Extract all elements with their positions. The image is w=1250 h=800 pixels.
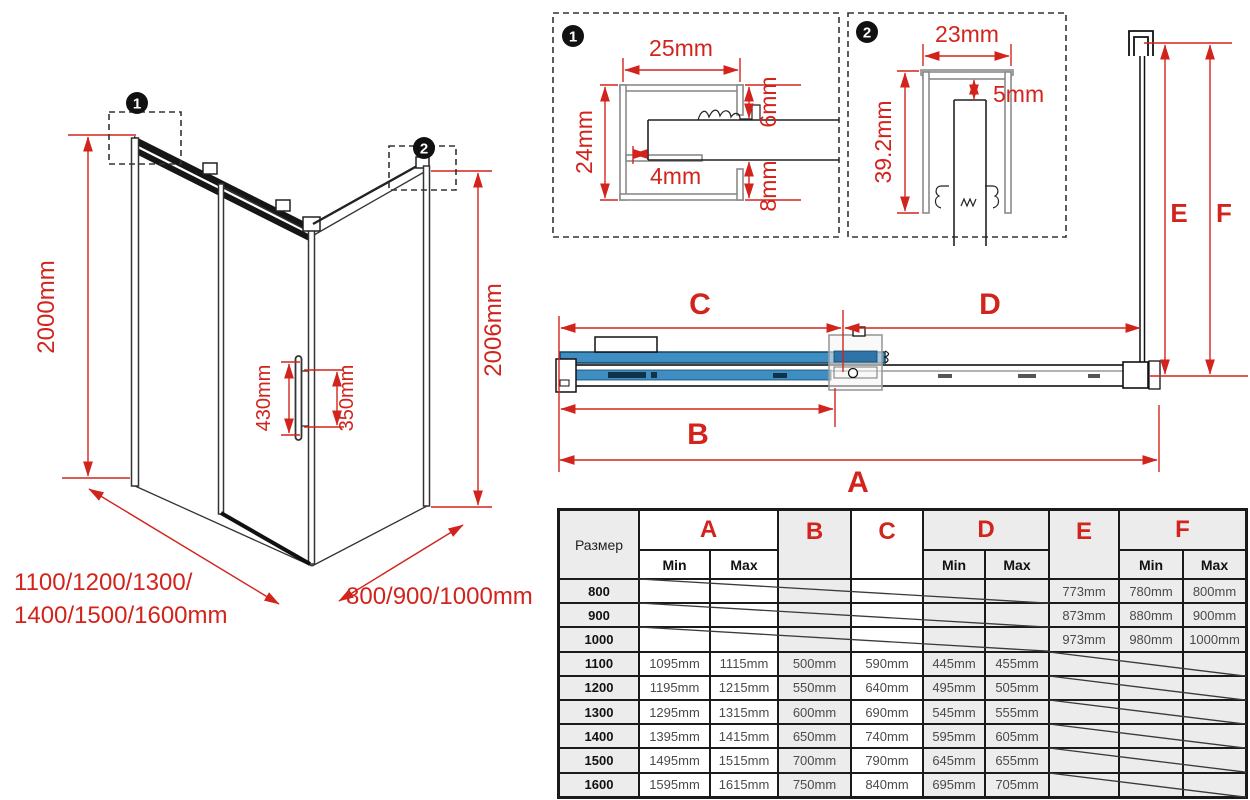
roller-block	[276, 200, 290, 211]
size-value-cell: 705mm	[985, 773, 1049, 797]
size-row-label: 1300	[559, 700, 639, 724]
size-value-cell	[639, 603, 710, 627]
size-value-cell	[1119, 652, 1183, 676]
dim-width-label-line1: 1100/1200/1300/	[14, 569, 193, 596]
size-value-cell	[985, 627, 1049, 651]
table-header-c: C	[851, 510, 923, 579]
size-value-cell	[851, 603, 923, 627]
size-value-cell: 900mm	[1183, 603, 1246, 627]
size-value-cell	[1049, 748, 1119, 772]
support-bar	[313, 161, 426, 224]
corner-stile	[309, 228, 315, 564]
table-header-f-min: Min	[1119, 550, 1183, 579]
size-value-cell	[1119, 676, 1183, 700]
fixed-glass-plan	[565, 370, 831, 380]
dim-f-label: F	[1216, 198, 1232, 228]
table-header-a-max: Max	[710, 550, 778, 579]
size-value-cell	[851, 627, 923, 651]
size-value-cell: 1195mm	[639, 676, 710, 700]
dim-d-label: D	[979, 288, 1001, 321]
size-value-cell: 500mm	[778, 652, 851, 676]
table-header-d-max: Max	[985, 550, 1049, 579]
corner-connector-plan	[1123, 362, 1148, 388]
table-header-f: F	[1119, 510, 1246, 550]
size-value-cell	[1049, 724, 1119, 748]
side-panel-top-edge	[314, 171, 426, 235]
size-value-cell: 800mm	[1183, 579, 1246, 603]
door-left-stile	[219, 184, 224, 514]
isometric-view: 2000mm 2006mm 430mm 350mm 1100/1200/1300…	[0, 0, 555, 680]
size-value-cell: 700mm	[778, 748, 851, 772]
size-value-cell: 605mm	[985, 724, 1049, 748]
dim-a-label: A	[847, 466, 869, 499]
size-value-cell: 1495mm	[639, 748, 710, 772]
size-value-cell: 1315mm	[710, 700, 778, 724]
size-value-cell	[851, 579, 923, 603]
plan-view: C D B A E F	[548, 20, 1250, 495]
wall-profile-left	[132, 138, 139, 486]
size-value-cell: 840mm	[851, 773, 923, 797]
dim-c-label: C	[689, 288, 711, 321]
bottom-guide-rail	[221, 513, 310, 564]
enclosure-structure	[132, 136, 430, 566]
size-row-label: 1100	[559, 652, 639, 676]
size-value-cell: 1115mm	[710, 652, 778, 676]
door-top-edge	[223, 187, 308, 231]
size-value-cell: 1215mm	[710, 676, 778, 700]
size-row-label: 900	[559, 603, 639, 627]
side-panel-plan	[1129, 31, 1153, 384]
dim-depth-label: 800/900/1000mm	[346, 583, 533, 610]
size-value-cell: 880mm	[1119, 603, 1183, 627]
size-value-cell	[923, 579, 985, 603]
size-value-cell	[923, 603, 985, 627]
size-value-cell: 555mm	[985, 700, 1049, 724]
size-value-cell	[1119, 700, 1183, 724]
size-value-cell: 550mm	[778, 676, 851, 700]
table-header-a: A	[639, 510, 778, 550]
corner-bracket	[303, 217, 320, 231]
size-row-label: 1200	[559, 676, 639, 700]
size-value-cell	[1049, 700, 1119, 724]
size-value-cell: 773mm	[1049, 579, 1119, 603]
dim-width-label-line2: 1400/1500/1600mm	[14, 602, 228, 629]
size-table: Размер A Min Max B C D Min Max E F Min M…	[557, 508, 1248, 799]
size-value-cell: 1595mm	[639, 773, 710, 797]
size-value-cell: 790mm	[851, 748, 923, 772]
size-value-cell: 645mm	[923, 748, 985, 772]
size-value-cell: 1415mm	[710, 724, 778, 748]
size-value-cell: 1515mm	[710, 748, 778, 772]
table-header-a-min: Min	[639, 550, 710, 579]
size-value-cell	[1183, 676, 1246, 700]
size-value-cell: 695mm	[923, 773, 985, 797]
size-value-cell: 590mm	[851, 652, 923, 676]
size-value-cell: 545mm	[923, 700, 985, 724]
size-value-cell: 980mm	[1119, 627, 1183, 651]
size-value-cell	[778, 627, 851, 651]
size-value-cell: 1295mm	[639, 700, 710, 724]
size-value-cell: 600mm	[778, 700, 851, 724]
size-value-cell: 750mm	[778, 773, 851, 797]
size-row-label: 1400	[559, 724, 639, 748]
size-value-cell: 780mm	[1119, 579, 1183, 603]
size-value-cell	[639, 579, 710, 603]
size-value-cell	[1119, 724, 1183, 748]
size-value-cell: 1395mm	[639, 724, 710, 748]
size-value-cell	[710, 579, 778, 603]
size-row-label: 1000	[559, 627, 639, 651]
roller-block	[203, 163, 217, 174]
size-value-cell	[778, 603, 851, 627]
dim-handle-holes-label: 350mm	[336, 365, 358, 432]
dim-height-right-label: 2006mm	[480, 283, 507, 376]
size-row-label: 1600	[559, 773, 639, 797]
table-header-e: E	[1049, 510, 1119, 579]
size-value-cell: 1095mm	[639, 652, 710, 676]
door-handle	[296, 356, 302, 440]
size-value-cell: 973mm	[1049, 627, 1119, 651]
size-value-cell: 1000mm	[1183, 627, 1246, 651]
size-value-cell	[1049, 773, 1119, 797]
size-value-cell: 640mm	[851, 676, 923, 700]
table-header-d: D	[923, 510, 1049, 550]
size-value-cell	[923, 627, 985, 651]
size-value-cell	[1049, 676, 1119, 700]
marker-2-number: 2	[420, 141, 428, 158]
marker-1-number: 1	[133, 96, 141, 113]
size-value-cell	[1183, 773, 1246, 797]
size-value-cell	[1119, 773, 1183, 797]
size-value-cell: 445mm	[923, 652, 985, 676]
dim-b-label: B	[687, 418, 709, 451]
size-value-cell: 690mm	[851, 700, 923, 724]
size-value-cell	[710, 603, 778, 627]
dim-handle-length-label: 430mm	[253, 365, 275, 432]
size-value-cell	[985, 579, 1049, 603]
size-value-cell: 740mm	[851, 724, 923, 748]
size-value-cell	[1183, 700, 1246, 724]
size-row-label: 1500	[559, 748, 639, 772]
size-value-cell	[1049, 652, 1119, 676]
shower-enclosure-technical-drawing: 2000mm 2006mm 430mm 350mm 1100/1200/1300…	[0, 0, 1250, 800]
size-value-cell	[1183, 724, 1246, 748]
door-bracket-plan	[595, 337, 657, 352]
size-value-cell: 455mm	[985, 652, 1049, 676]
table-header-d-min: Min	[923, 550, 985, 579]
table-header-size: Размер	[559, 510, 639, 579]
size-value-cell: 873mm	[1049, 603, 1119, 627]
size-value-cell: 505mm	[985, 676, 1049, 700]
size-value-cell: 655mm	[985, 748, 1049, 772]
size-value-cell	[1183, 748, 1246, 772]
side-panel-stile	[424, 166, 430, 506]
dim-height-left-label: 2000mm	[33, 260, 60, 353]
dim-e-label: E	[1170, 198, 1187, 228]
size-value-cell: 650mm	[778, 724, 851, 748]
size-value-cell: 595mm	[923, 724, 985, 748]
table-header-b: B	[778, 510, 851, 579]
table-header-f-max: Max	[1183, 550, 1246, 579]
size-value-cell	[985, 603, 1049, 627]
size-row-label: 800	[559, 579, 639, 603]
size-value-cell: 495mm	[923, 676, 985, 700]
size-value-cell: 1615mm	[710, 773, 778, 797]
roller-carriage-plan	[829, 327, 882, 390]
size-value-cell	[1183, 652, 1246, 676]
size-value-cell	[639, 627, 710, 651]
size-value-cell	[710, 627, 778, 651]
size-value-cell	[778, 579, 851, 603]
size-value-cell	[1119, 748, 1183, 772]
